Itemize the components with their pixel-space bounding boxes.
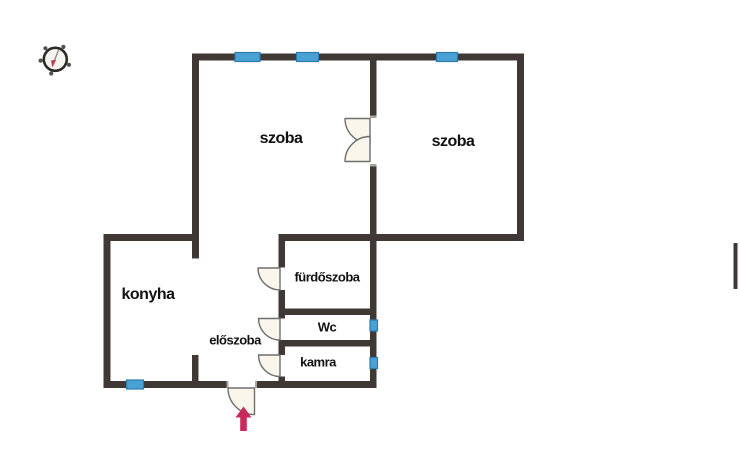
compass-knob [49, 71, 53, 75]
wc-door [259, 319, 281, 341]
walls [104, 54, 738, 389]
window-marker [297, 53, 319, 62]
room-label-wc: Wc [318, 320, 337, 335]
window-marker [127, 380, 144, 389]
kamra-door [259, 355, 281, 377]
furdoszoba-door [258, 268, 280, 290]
double-door-leaf [345, 137, 370, 162]
room-label-eloszoba: előszoba [209, 333, 261, 348]
window-marker [370, 358, 378, 369]
window-marker [235, 53, 260, 62]
wall-segment [255, 381, 377, 388]
wall-segment [279, 340, 377, 347]
wall-segment [279, 309, 377, 316]
jamb-mark [227, 381, 229, 388]
wall-segment [279, 234, 525, 241]
room-label-kamra: kamra [300, 355, 336, 370]
wall-segment [279, 377, 286, 389]
room-label-konyha: konyha [121, 286, 174, 304]
compass-knob [39, 59, 43, 63]
wall-segment [104, 234, 200, 241]
wall-segment [517, 54, 524, 242]
room-label-furdoszoba: fürdőszoba [294, 270, 359, 285]
doors [228, 119, 370, 415]
compass-knob [43, 46, 47, 50]
wall-segment [192, 355, 199, 388]
compass-knob [61, 45, 65, 49]
compass-knob [67, 63, 71, 67]
room-label-szoba-left: szoba [260, 130, 303, 148]
window-marker [370, 320, 378, 331]
wall-segment [370, 54, 377, 116]
compass-north-icon [39, 45, 72, 76]
wall-segment [279, 234, 286, 268]
wall-segment [104, 381, 229, 388]
jamb-mark [370, 164, 377, 167]
wall-segment [192, 54, 199, 259]
jamb-mark [370, 116, 377, 119]
wall-segment [104, 234, 111, 388]
room-label-szoba-right: szoba [432, 133, 475, 151]
windows [127, 53, 458, 390]
jamb-mark [255, 381, 257, 388]
clipped-wall-fragment [734, 243, 738, 289]
wall-segment [370, 164, 377, 388]
floor-plan-drawing [0, 0, 740, 450]
window-marker [437, 53, 458, 62]
floor-plan-canvas: szoba szoba konyha fürdőszoba Wc kamra e… [0, 0, 740, 450]
